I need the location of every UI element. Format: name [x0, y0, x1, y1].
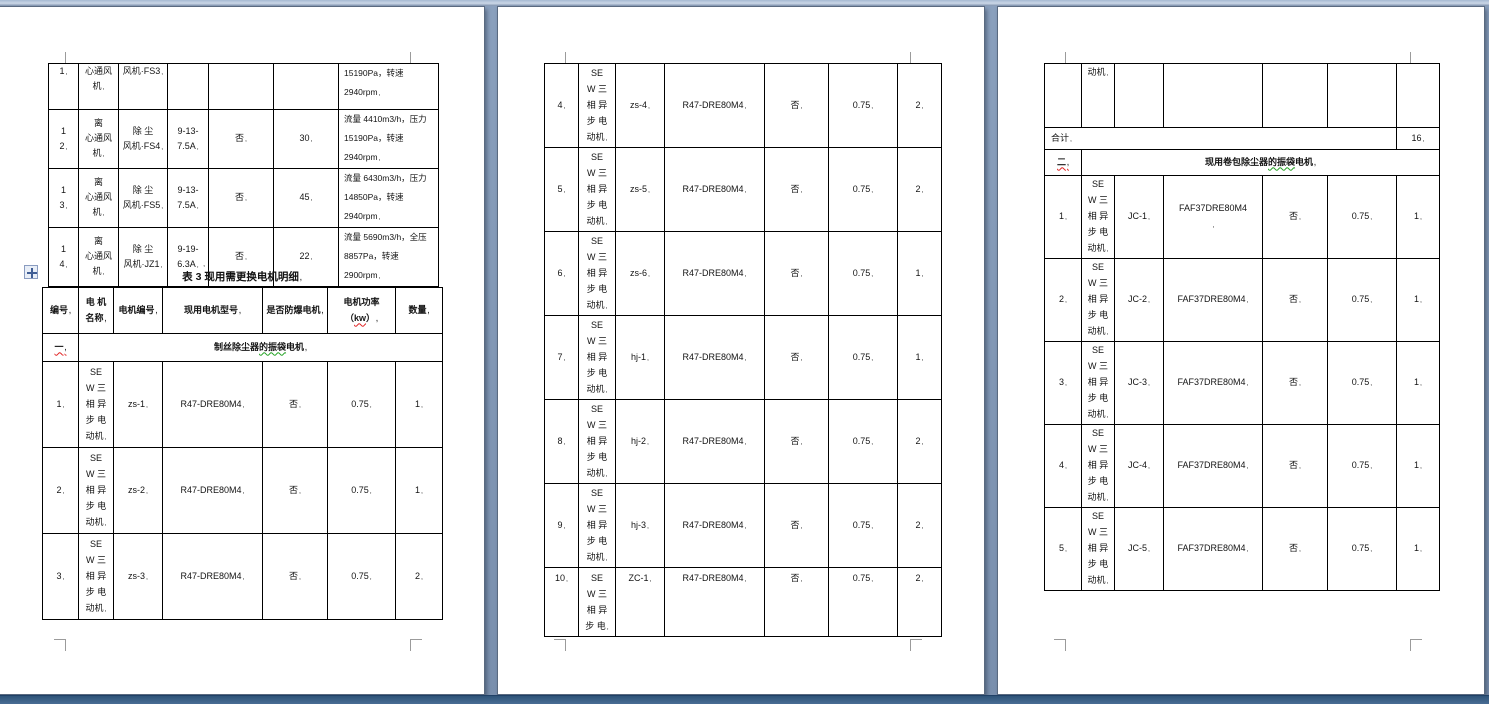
- cell-qty: 1: [1397, 425, 1440, 508]
- cell-name: SE W 三 相 异 步 电: [579, 568, 616, 637]
- cell-flag: 否: [1263, 342, 1328, 425]
- cell-qty: 2: [898, 568, 942, 637]
- header-no: 编号: [43, 288, 79, 334]
- cell-power: 0.75: [829, 148, 898, 232]
- cell-no: 1: [49, 64, 79, 110]
- cell-no: 4: [545, 64, 579, 148]
- cell-model: FAF37DRE80M4: [1164, 176, 1263, 259]
- section-row-2: 二 现用卷包除尘器的振袋电机: [1045, 150, 1440, 176]
- cell-no: 10: [545, 568, 579, 637]
- cell-qty: 2: [898, 64, 942, 148]
- total-row: 合计 16: [1045, 128, 1440, 150]
- table3-title: 表 3 现用需更换电机明细: [42, 269, 442, 285]
- cell-power: 0.75: [829, 64, 898, 148]
- cell-name: SE W 三 相 异 步 电 动机: [579, 148, 616, 232]
- cell-no: 5: [545, 148, 579, 232]
- cell-spec: 9-13-7.5A: [168, 169, 209, 228]
- cell-no: 6: [545, 232, 579, 316]
- cell-no: 4: [1045, 425, 1082, 508]
- cell-model: FAF37DRE80M4: [1164, 259, 1263, 342]
- cell-code: hj-2: [616, 400, 665, 484]
- cell-model: R47-DRE80M4: [665, 484, 765, 568]
- cell-flag: 否: [263, 448, 328, 534]
- section-index: 二: [1045, 150, 1082, 176]
- cell-code: zs-1: [114, 362, 163, 448]
- cell-power: 0.75: [328, 534, 396, 620]
- cell-flag: 否: [765, 64, 829, 148]
- cell-flag: 否: [1263, 425, 1328, 508]
- cell-no: 1 2: [49, 110, 79, 169]
- cell-power: 30: [274, 110, 339, 169]
- cell-code: JC-3: [1115, 342, 1164, 425]
- table-row: 1心通风 机风机·FS315190Pa，转速 2940rpm: [49, 64, 439, 110]
- cell-qty: 2: [898, 484, 942, 568]
- cell-power: 0.75: [1328, 342, 1397, 425]
- replacement-motor-table: 编号 电 机 名称 电机编号 现用电机型号 是否防爆电机 电机功率（kw） 数量…: [42, 287, 443, 620]
- document-page-3[interactable]: 动机 合计 16 二 现用卷包除尘器的振袋电机 1SE W 三 相 异 步 电 …: [997, 6, 1485, 695]
- cell-flag: 否: [765, 316, 829, 400]
- word-document-view: { "pages": [ { "top_table": { "rows": [ …: [0, 0, 1489, 704]
- section-title: 现用卷包除尘器的振袋电机: [1082, 150, 1440, 176]
- table-row: 1SE W 三 相 异 步 电 动机JC-1FAF37DRE80M4 否0.75…: [1045, 176, 1440, 259]
- cell-flag: 否: [765, 400, 829, 484]
- cell-spec: 9-13-7.5A: [168, 110, 209, 169]
- cell-code: JC-5: [1115, 508, 1164, 591]
- cell-power: 0.75: [328, 362, 396, 448]
- cell-code: zs-4: [616, 64, 665, 148]
- cell-code: JC-2: [1115, 259, 1164, 342]
- cell-flag: [209, 64, 274, 110]
- cell-name: SE W 三 相 异 步 电 动机: [1082, 508, 1115, 591]
- cell-model: R47-DRE80M4: [665, 64, 765, 148]
- cell-model: R47-DRE80M4: [665, 568, 765, 637]
- cell-code: JC-4: [1115, 425, 1164, 508]
- cell-model: R47-DRE80M4: [665, 316, 765, 400]
- table-row: 4SE W 三 相 异 步 电 动机zs-4R47-DRE80M4否0.752: [545, 64, 942, 148]
- cell-remark: 流量 6430m3/h，压力 14850Pa，转速 2940rpm: [339, 169, 439, 228]
- cell-no: 1: [43, 362, 79, 448]
- section-index: 一: [43, 334, 79, 362]
- cell-code: JC-1: [1115, 176, 1164, 259]
- cell-flag: 否: [765, 484, 829, 568]
- cell-qty: 1: [898, 316, 942, 400]
- section-title: 制丝除尘器的振袋电机: [79, 334, 443, 362]
- cell-qty: 1: [1397, 508, 1440, 591]
- header-motor-name: 电 机 名称: [79, 288, 114, 334]
- cell-model: [1164, 64, 1263, 128]
- table-row: 2SE W 三 相 异 步 电 动机JC-2FAF37DRE80M4否0.751: [1045, 259, 1440, 342]
- table-row: 5SE W 三 相 异 步 电 动机JC-5FAF37DRE80M4否0.751: [1045, 508, 1440, 591]
- table-row: 1 3离 心通风 机除 尘 风机·FS59-13-7.5A否45流量 6430m…: [49, 169, 439, 228]
- table-header-row: 编号 电 机 名称 电机编号 现用电机型号 是否防爆电机 电机功率（kw） 数量: [43, 288, 443, 334]
- cell-code: [1115, 64, 1164, 128]
- cell-no: 5: [1045, 508, 1082, 591]
- cell-name: SE W 三 相 异 步 电 动机: [1082, 342, 1115, 425]
- cell-qty: 1: [396, 448, 443, 534]
- table-move-handle-icon[interactable]: [24, 265, 38, 279]
- cell-power: 0.75: [1328, 259, 1397, 342]
- cell-model: FAF37DRE80M4: [1164, 425, 1263, 508]
- table-row: 6SE W 三 相 异 步 电 动机zs-6R47-DRE80M4否0.751: [545, 232, 942, 316]
- cell-power: 0.75: [829, 316, 898, 400]
- cell-name: SE W 三 相 异 步 电 动机: [579, 316, 616, 400]
- cell-flag: 否: [765, 148, 829, 232]
- cell-remark: 流量 4410m3/h，压力 15190Pa，转速 2940rpm: [339, 110, 439, 169]
- table-row: 1 2离 心通风 机除 尘 风机·FS49-13-7.5A否30流量 4410m…: [49, 110, 439, 169]
- cell-name: SE W 三 相 异 步 电 动机: [1082, 259, 1115, 342]
- cell-power: 0.75: [829, 568, 898, 637]
- cell-name: 离 心通风 机: [79, 110, 119, 169]
- cell-name: SE W 三 相 异 步 电 动机: [579, 484, 616, 568]
- cell-qty: 1: [898, 232, 942, 316]
- continuation-row: 动机: [1045, 64, 1440, 128]
- cell-code: zs-5: [616, 148, 665, 232]
- cell-code: ZC-1: [616, 568, 665, 637]
- cell-flag: 否: [209, 169, 274, 228]
- cell-code: hj-1: [616, 316, 665, 400]
- cell-name: SE W 三 相 异 步 电 动机: [79, 362, 114, 448]
- cell-flag: 否: [765, 568, 829, 637]
- cell-name: SE W 三 相 异 步 电 动机: [579, 232, 616, 316]
- cell-flag: 否: [263, 534, 328, 620]
- table-row: 4SE W 三 相 异 步 电 动机JC-4FAF37DRE80M4否0.751: [1045, 425, 1440, 508]
- document-page-2[interactable]: 4SE W 三 相 异 步 电 动机zs-4R47-DRE80M4否0.7525…: [497, 6, 985, 695]
- cell-flag: 否: [263, 362, 328, 448]
- window-bottom-edge: [0, 695, 1489, 704]
- cell-name: SE W 三 相 异 步 电 动机: [1082, 425, 1115, 508]
- cell-name: SE W 三 相 异 步 电 动机: [79, 534, 114, 620]
- paragraph-mark: [203, 259, 205, 268]
- cell-power: 0.75: [1328, 508, 1397, 591]
- cell-no: 1 3: [49, 169, 79, 228]
- cell-code: 除 尘 风机·FS4: [119, 110, 168, 169]
- cell-power: 0.75: [1328, 176, 1397, 259]
- cell-power: 0.75: [829, 484, 898, 568]
- header-explosion-proof: 是否防爆电机: [263, 288, 328, 334]
- cell-spec: [168, 64, 209, 110]
- cell-power: 0.75: [328, 448, 396, 534]
- table-row: 5SE W 三 相 异 步 电 动机zs-5R47-DRE80M4否0.752: [545, 148, 942, 232]
- crop-mark-bottom-left: [554, 639, 566, 651]
- cell-no: 2: [43, 448, 79, 534]
- cell-no: 1: [1045, 176, 1082, 259]
- cell-model: R47-DRE80M4: [163, 534, 263, 620]
- crop-mark-bottom-right: [910, 639, 922, 651]
- header-motor-power: 电机功率（kw）: [328, 288, 396, 334]
- table-row: 8SE W 三 相 异 步 电 动机hj-2R47-DRE80M4否0.752: [545, 400, 942, 484]
- table-row: 3SE W 三 相 异 步 电 动机JC-3FAF37DRE80M4否0.751: [1045, 342, 1440, 425]
- cell-no: 8: [545, 400, 579, 484]
- cell-flag: 否: [1263, 259, 1328, 342]
- cell-power: 0.75: [829, 400, 898, 484]
- crop-mark-bottom-right: [1410, 639, 1422, 651]
- cell-qty: 2: [898, 148, 942, 232]
- cell-name: 离 心通风 机: [79, 169, 119, 228]
- table-row: 10SE W 三 相 异 步 电ZC-1R47-DRE80M4否0.752: [545, 568, 942, 637]
- total-label: 合计: [1045, 128, 1397, 150]
- table-row: 1SE W 三 相 异 步 电 动机zs-1R47-DRE80M4否0.751: [43, 362, 443, 448]
- cell-name: SE W 三 相 异 步 电 动机: [579, 64, 616, 148]
- cell-flag: [1263, 64, 1328, 128]
- cell-model: R47-DRE80M4: [163, 448, 263, 534]
- cell-name: SE W 三 相 异 步 电 动机: [79, 448, 114, 534]
- cell-model: R47-DRE80M4: [665, 148, 765, 232]
- cell-model: R47-DRE80M4: [665, 400, 765, 484]
- cell-name: 动机: [1082, 64, 1115, 128]
- table-row: 7SE W 三 相 异 步 电 动机hj-1R47-DRE80M4否0.751: [545, 316, 942, 400]
- cell-qty: 1: [1397, 342, 1440, 425]
- cell-qty: 1: [1397, 259, 1440, 342]
- cell-no: 3: [43, 534, 79, 620]
- cell-qty: 1: [396, 362, 443, 448]
- crop-mark-bottom-left: [1054, 639, 1066, 651]
- cell-power: [1328, 64, 1397, 128]
- table-row: 9SE W 三 相 异 步 电 动机hj-3R47-DRE80M4否0.752: [545, 484, 942, 568]
- cell-code: zs-6: [616, 232, 665, 316]
- cell-power: [274, 64, 339, 110]
- cell-flag: 否: [1263, 176, 1328, 259]
- cell-qty: 2: [898, 400, 942, 484]
- cell-no: [1045, 64, 1082, 128]
- cell-no: 7: [545, 316, 579, 400]
- cell-remark: 15190Pa，转速 2940rpm: [339, 64, 439, 110]
- cell-code: 风机·FS3: [119, 64, 168, 110]
- cell-qty: 2: [396, 534, 443, 620]
- fan-motor-table-continued: 1心通风 机风机·FS315190Pa，转速 2940rpm1 2离 心通风 机…: [48, 63, 439, 287]
- total-value: 16: [1397, 128, 1440, 150]
- cell-code: zs-2: [114, 448, 163, 534]
- cell-name: 心通风 机: [79, 64, 119, 110]
- cell-name: SE W 三 相 异 步 电 动机: [1082, 176, 1115, 259]
- replacement-motor-table-page2: 4SE W 三 相 异 步 电 动机zs-4R47-DRE80M4否0.7525…: [544, 63, 942, 637]
- cell-model: R47-DRE80M4: [163, 362, 263, 448]
- document-page-1[interactable]: 1心通风 机风机·FS315190Pa，转速 2940rpm1 2离 心通风 机…: [0, 6, 485, 695]
- crop-mark-bottom-right: [410, 639, 422, 651]
- cell-qty: [1397, 64, 1440, 128]
- cell-name: SE W 三 相 异 步 电 动机: [579, 400, 616, 484]
- cell-model: FAF37DRE80M4: [1164, 508, 1263, 591]
- cell-power: 45: [274, 169, 339, 228]
- table-row: 3SE W 三 相 异 步 电 动机zs-3R47-DRE80M4否0.752: [43, 534, 443, 620]
- cell-code: 除 尘 风机·FS5: [119, 169, 168, 228]
- cell-qty: 1: [1397, 176, 1440, 259]
- cell-model: FAF37DRE80M4: [1164, 342, 1263, 425]
- cell-model: R47-DRE80M4: [665, 232, 765, 316]
- crop-mark-bottom-left: [54, 639, 66, 651]
- cell-code: zs-3: [114, 534, 163, 620]
- cell-power: 0.75: [829, 232, 898, 316]
- cell-no: 9: [545, 484, 579, 568]
- cell-flag: 否: [209, 110, 274, 169]
- cell-code: hj-3: [616, 484, 665, 568]
- section-row-1: 一 制丝除尘器的振袋电机: [43, 334, 443, 362]
- cell-no: 2: [1045, 259, 1082, 342]
- header-motor-code: 电机编号: [114, 288, 163, 334]
- header-quantity: 数量: [396, 288, 443, 334]
- cell-power: 0.75: [1328, 425, 1397, 508]
- cell-no: 3: [1045, 342, 1082, 425]
- cell-flag: 否: [1263, 508, 1328, 591]
- replacement-motor-table-page3: 动机 合计 16 二 现用卷包除尘器的振袋电机 1SE W 三 相 异 步 电 …: [1044, 63, 1440, 591]
- table-row: 2SE W 三 相 异 步 电 动机zs-2R47-DRE80M4否0.751: [43, 448, 443, 534]
- cell-flag: 否: [765, 232, 829, 316]
- header-current-model: 现用电机型号: [163, 288, 263, 334]
